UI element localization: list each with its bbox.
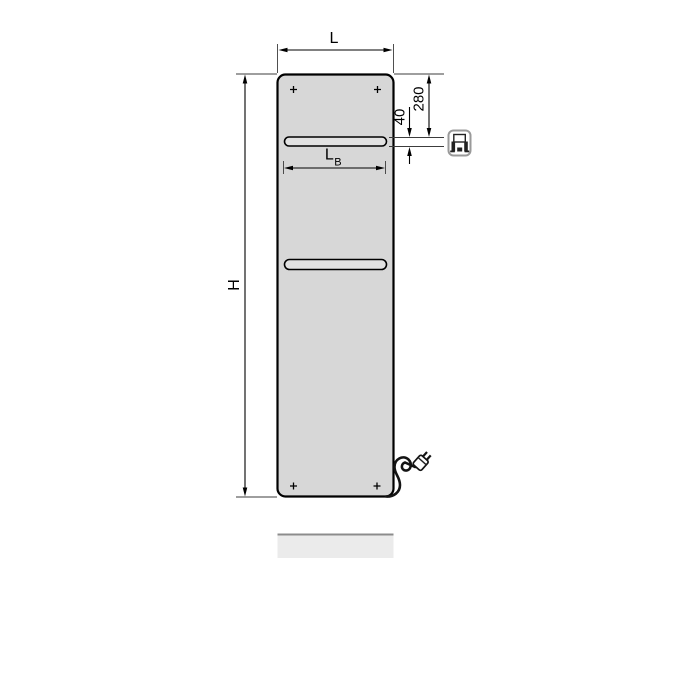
dim-height-label: H bbox=[227, 279, 243, 291]
dim-40-label: 40 bbox=[393, 109, 408, 126]
dim-bar-width-sub: B bbox=[334, 157, 341, 169]
radiator-dimension-drawing bbox=[0, 0, 700, 700]
dim-bar-width-main: L bbox=[325, 146, 334, 163]
dim-280-label: 280 bbox=[412, 86, 427, 111]
towel-bar-slot-lower bbox=[285, 260, 387, 270]
dim-width-label: L bbox=[330, 31, 339, 47]
electric-connection-icon bbox=[449, 131, 471, 156]
width-dimension bbox=[279, 48, 393, 53]
dim-bar-width-label: LB bbox=[325, 147, 341, 166]
towel-bar-slot-upper bbox=[285, 137, 387, 146]
diagram-canvas: L H 280 40 LB bbox=[0, 0, 700, 700]
height-dimension bbox=[243, 75, 248, 497]
floor-profile bbox=[278, 534, 394, 559]
